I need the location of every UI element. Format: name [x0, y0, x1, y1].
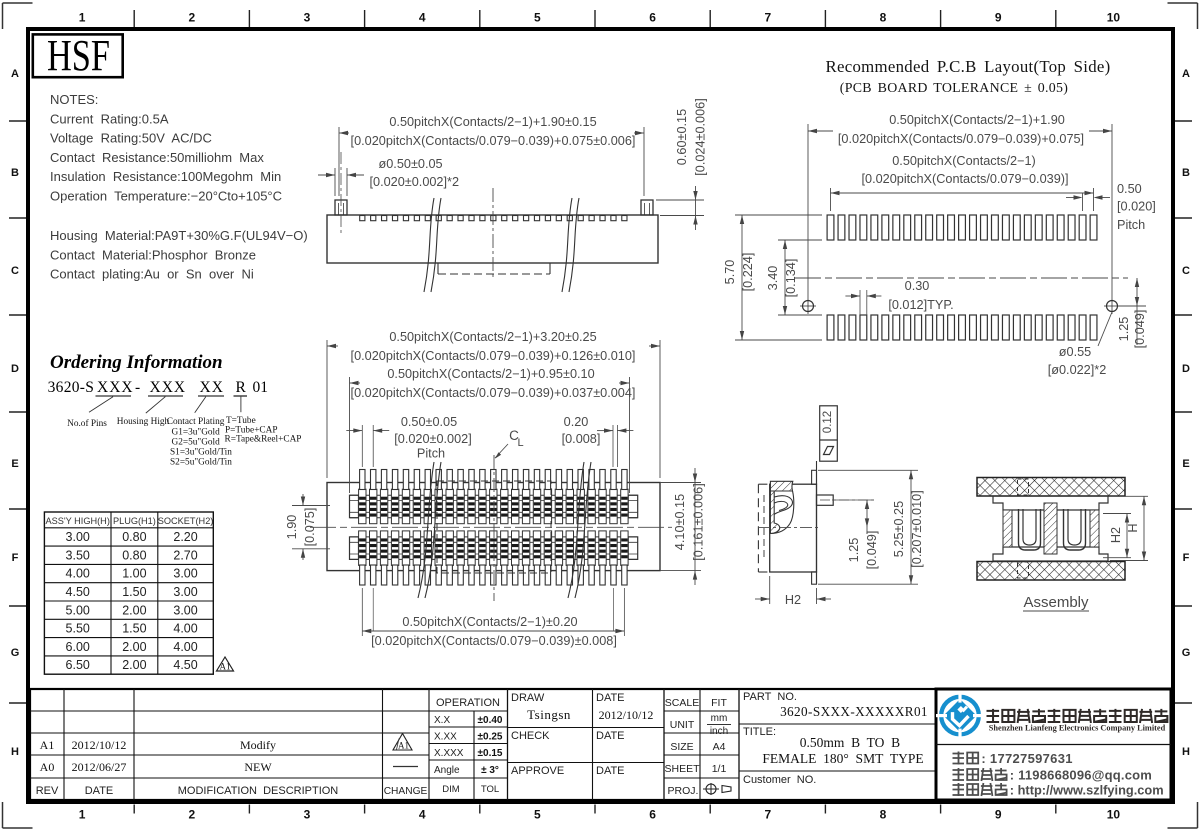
- svg-text:UNIT: UNIT: [670, 719, 695, 731]
- svg-text:DRAW: DRAW: [511, 692, 545, 704]
- svg-text:2.70: 2.70: [173, 548, 197, 562]
- svg-text:inch: inch: [710, 726, 728, 737]
- svg-text:NOTES:: NOTES:: [50, 92, 98, 107]
- svg-text:OPERATION: OPERATION: [436, 697, 500, 709]
- svg-text:0.50mm B TO B: 0.50mm B TO B: [800, 735, 900, 750]
- svg-text:1.25: 1.25: [1117, 317, 1131, 342]
- svg-text:MODIFICATION DESCRIPTION: MODIFICATION DESCRIPTION: [178, 785, 339, 797]
- svg-text:10: 10: [1107, 11, 1121, 25]
- svg-text:[0.049]: [0.049]: [865, 531, 879, 570]
- svg-text:S2=5u"Gold/Tin: S2=5u"Gold/Tin: [170, 458, 232, 468]
- svg-text:[0.224]: [0.224]: [741, 253, 755, 292]
- svg-text:Housing Material:PA9T+30%G.F(: Housing Material:PA9T+30%G.F(UL94V−O): [50, 228, 308, 243]
- svg-text:0.12: 0.12: [822, 411, 834, 433]
- svg-text:8: 8: [880, 11, 887, 25]
- svg-text:C: C: [1182, 265, 1190, 277]
- svg-text:4.00: 4.00: [173, 640, 197, 654]
- svg-text:T=Tube: T=Tube: [226, 416, 256, 426]
- svg-text:FIT: FIT: [711, 697, 727, 709]
- svg-text:3620-S: 3620-S: [48, 379, 95, 396]
- svg-text:F: F: [1183, 552, 1190, 564]
- svg-text:9: 9: [995, 11, 1002, 25]
- svg-text:R=Tape&Reel+CAP: R=Tape&Reel+CAP: [225, 435, 302, 445]
- svg-text:G: G: [11, 647, 20, 659]
- svg-text:2: 2: [188, 808, 195, 822]
- svg-text:[0.020pitchX(Contacts/0.079−0.: [0.020pitchX(Contacts/0.079−0.039)+0.075…: [838, 132, 1084, 146]
- svg-text:4: 4: [419, 11, 426, 25]
- svg-text:2.00: 2.00: [122, 658, 146, 672]
- svg-text:±0.15: ±0.15: [478, 748, 503, 759]
- svg-text:H: H: [1126, 523, 1140, 532]
- svg-text:PART NO.: PART NO.: [743, 691, 797, 703]
- svg-text:4.00: 4.00: [66, 567, 90, 581]
- svg-text:X.XX: X.XX: [434, 732, 457, 743]
- svg-text:DATE: DATE: [596, 692, 625, 704]
- svg-text:D: D: [11, 363, 19, 375]
- svg-text:A: A: [11, 68, 19, 80]
- svg-text:DATE: DATE: [596, 730, 625, 742]
- svg-text:B: B: [11, 167, 19, 179]
- svg-text:1: 1: [79, 808, 86, 822]
- svg-text:A1: A1: [398, 741, 409, 751]
- svg-text:G1=3u"Gold: G1=3u"Gold: [172, 428, 221, 438]
- svg-text:0.50±0.05: 0.50±0.05: [401, 415, 457, 429]
- svg-text:0.20: 0.20: [564, 415, 589, 429]
- svg-text:3.00: 3.00: [173, 603, 197, 617]
- svg-text:1.50: 1.50: [122, 585, 146, 599]
- svg-text:7: 7: [764, 11, 771, 25]
- svg-text:L: L: [517, 437, 523, 449]
- svg-text:ø0.50±0.05: ø0.50±0.05: [379, 157, 443, 171]
- svg-text:H: H: [11, 746, 19, 758]
- svg-text:0.60±0.15: 0.60±0.15: [675, 109, 689, 165]
- svg-text:A1: A1: [40, 738, 55, 752]
- svg-text:Pitch: Pitch: [1117, 218, 1145, 232]
- svg-text:1.50: 1.50: [122, 622, 146, 636]
- svg-text:A1: A1: [220, 662, 231, 672]
- svg-text:±0.40: ±0.40: [478, 715, 503, 726]
- svg-text:7: 7: [764, 808, 771, 822]
- svg-text:E: E: [1182, 458, 1189, 470]
- svg-text:5.00: 5.00: [66, 603, 90, 617]
- svg-text:H: H: [1182, 746, 1190, 758]
- svg-text:[0.012]TYP.: [0.012]TYP.: [888, 298, 953, 312]
- svg-text:4.10±0.15: 4.10±0.15: [673, 494, 687, 550]
- svg-text:SIZE: SIZE: [670, 741, 693, 753]
- svg-text:0.80: 0.80: [122, 530, 146, 544]
- svg-text:3: 3: [304, 808, 311, 822]
- svg-text:SHEET: SHEET: [664, 763, 700, 775]
- svg-text:[0.020pitchX(Contacts/0.079−0.: [0.020pitchX(Contacts/0.079−0.039)+0.075…: [351, 134, 636, 148]
- svg-text:6: 6: [649, 11, 656, 25]
- svg-text:NEW: NEW: [244, 760, 272, 774]
- svg-text:5: 5: [534, 11, 541, 25]
- svg-text:B: B: [1182, 167, 1190, 179]
- svg-text:3620-SXXX-XXXXXR01: 3620-SXXX-XXXXXR01: [780, 704, 928, 719]
- svg-text:2.20: 2.20: [173, 530, 197, 544]
- svg-text:9: 9: [995, 808, 1002, 822]
- svg-text:Tsingsn: Tsingsn: [527, 707, 571, 722]
- svg-text:4: 4: [419, 808, 426, 822]
- svg-text:A4: A4: [713, 741, 726, 753]
- svg-text:1: 1: [79, 11, 86, 25]
- svg-text:PROJ.: PROJ.: [668, 785, 699, 797]
- svg-text:2.00: 2.00: [122, 640, 146, 654]
- svg-text:6.50: 6.50: [66, 658, 90, 672]
- svg-text:3.50: 3.50: [66, 548, 90, 562]
- svg-text:DATE: DATE: [85, 785, 114, 797]
- svg-text:ASS'Y HIGH(H): ASS'Y HIGH(H): [46, 516, 110, 526]
- svg-text:Housing High: Housing High: [117, 417, 170, 427]
- svg-text:[0.008]: [0.008]: [562, 432, 601, 446]
- svg-text:10: 10: [1107, 808, 1121, 822]
- svg-text:TITLE:: TITLE:: [743, 726, 776, 738]
- svg-text:2012/10/12: 2012/10/12: [599, 708, 654, 722]
- svg-text:SOCKET(H2): SOCKET(H2): [158, 516, 214, 526]
- svg-text:3.00: 3.00: [173, 567, 197, 581]
- svg-text:1.90: 1.90: [285, 515, 299, 540]
- svg-text:2012/06/27: 2012/06/27: [72, 760, 127, 774]
- svg-text:0.50pitchX(Contacts/2−1)+0.95±: 0.50pitchX(Contacts/2−1)+0.95±0.10: [387, 367, 594, 381]
- svg-text:CHECK: CHECK: [511, 730, 550, 742]
- svg-text:No.of Pins: No.of Pins: [67, 418, 107, 429]
- svg-text:[0.020±0.002]*2: [0.020±0.002]*2: [370, 175, 460, 189]
- svg-text:Shenzhen Lianfeng Electronics: Shenzhen Lianfeng Electronics Company Li…: [989, 724, 1166, 733]
- svg-text:SCALE: SCALE: [665, 697, 699, 709]
- svg-text:0.50pitchX(Contacts/2−1)±0.20: 0.50pitchX(Contacts/2−1)±0.20: [402, 615, 577, 629]
- svg-text:5.25±0.25: 5.25±0.25: [892, 501, 906, 557]
- svg-text:6: 6: [649, 808, 656, 822]
- svg-text:DATE: DATE: [596, 765, 625, 777]
- svg-text:3.00: 3.00: [66, 530, 90, 544]
- svg-text:01: 01: [253, 379, 269, 396]
- svg-text:A0: A0: [40, 760, 55, 774]
- svg-text:2: 2: [188, 11, 195, 25]
- svg-text:Contact Plating: Contact Plating: [167, 417, 225, 427]
- svg-text:[0.020pitchX(Contacts/0.079−0.: [0.020pitchX(Contacts/0.079−0.039)]: [861, 172, 1068, 186]
- svg-text:1.25: 1.25: [847, 538, 861, 563]
- svg-text:5: 5: [534, 808, 541, 822]
- svg-text:Pitch: Pitch: [417, 447, 445, 461]
- svg-text:[0.024±0.006]: [0.024±0.006]: [694, 98, 708, 176]
- svg-text:TOL: TOL: [481, 784, 499, 795]
- svg-text:CHANGE: CHANGE: [384, 786, 428, 797]
- svg-text:Contact plating:Au or Sn o: Contact plating:Au or Sn over Ni: [50, 267, 254, 282]
- svg-text:[0.020±0.002]: [0.020±0.002]: [394, 432, 472, 446]
- svg-text:Operation Temperature:−20°Cto: Operation Temperature:−20°Cto+105°C: [50, 189, 282, 204]
- svg-text:Contact Resistance:50milliohm: Contact Resistance:50milliohm Max: [50, 150, 264, 165]
- svg-text:6.00: 6.00: [66, 640, 90, 654]
- svg-text:± 3°: ± 3°: [481, 765, 499, 776]
- svg-text:Angle: Angle: [434, 765, 460, 776]
- svg-text:Insulation Resistance:100Mego: Insulation Resistance:100Megohm Min: [50, 169, 281, 184]
- svg-text:R: R: [236, 379, 247, 396]
- svg-text:4.00: 4.00: [173, 622, 197, 636]
- svg-text:Ordering Information: Ordering Information: [50, 352, 223, 373]
- svg-text:0.50pitchX(Contacts/2−1): 0.50pitchX(Contacts/2−1): [892, 154, 1036, 168]
- svg-text:C: C: [11, 265, 19, 277]
- svg-text:[0.134]: [0.134]: [784, 259, 798, 298]
- svg-text:APPROVE: APPROVE: [511, 765, 564, 777]
- svg-text:0.50pitchX(Contacts/2−1)+1.90: 0.50pitchX(Contacts/2−1)+1.90: [889, 113, 1065, 127]
- svg-text:[0.020pitchX(Contacts/0.079−0.: [0.020pitchX(Contacts/0.079−0.039)+0.037…: [351, 386, 636, 400]
- svg-text:Contact Material:Phosphor Br: Contact Material:Phosphor Bronze: [50, 247, 256, 262]
- svg-text:0.30: 0.30: [905, 279, 930, 293]
- svg-text:DIM: DIM: [442, 784, 460, 795]
- svg-text:[0.020pitchX(Contacts/0.079−0.: [0.020pitchX(Contacts/0.079−0.039)+0.126…: [351, 349, 636, 363]
- svg-text:3.40: 3.40: [766, 266, 780, 291]
- svg-text:2.00: 2.00: [122, 603, 146, 617]
- svg-text:-: -: [135, 379, 140, 396]
- svg-text:X.X: X.X: [434, 715, 450, 726]
- svg-text:XX: XX: [200, 379, 224, 396]
- svg-text:1.00: 1.00: [122, 567, 146, 581]
- svg-text:Modify: Modify: [240, 738, 276, 752]
- svg-text:8: 8: [880, 808, 887, 822]
- svg-text:A: A: [1182, 68, 1190, 80]
- svg-text:: 17727597631: : 17727597631: [981, 751, 1072, 766]
- svg-text:[0.075]: [0.075]: [303, 508, 317, 547]
- svg-text:[ø0.022]*2: [ø0.022]*2: [1048, 363, 1107, 377]
- svg-text:[0.020]: [0.020]: [1117, 200, 1156, 214]
- svg-text:: http://www.szlfying.com: : http://www.szlfying.com: [1010, 783, 1164, 798]
- svg-text:XXX: XXX: [97, 379, 134, 396]
- svg-text:[0.020pitchX(Contacts/0.079−0.: [0.020pitchX(Contacts/0.079−0.039)±0.008…: [371, 634, 617, 648]
- svg-text:HSF: HSF: [47, 31, 110, 80]
- svg-text:Customer NO.: Customer NO.: [743, 774, 816, 786]
- svg-text:: 1198668096@qq.com: : 1198668096@qq.com: [1010, 768, 1152, 783]
- svg-text:REV: REV: [36, 785, 59, 797]
- svg-text:XXX: XXX: [150, 379, 187, 396]
- svg-text:ø0.55: ø0.55: [1059, 345, 1091, 359]
- svg-text:0.80: 0.80: [122, 548, 146, 562]
- svg-text:G: G: [1182, 647, 1191, 659]
- svg-text:0.50pitchX(Contacts/2−1)+1.90±: 0.50pitchX(Contacts/2−1)+1.90±0.15: [389, 115, 596, 129]
- svg-text:[0.161±0.006]: [0.161±0.006]: [692, 483, 706, 561]
- svg-text:1/1: 1/1: [712, 763, 727, 775]
- svg-text:mm: mm: [711, 713, 728, 724]
- svg-text:Current Rating:0.5A: Current Rating:0.5A: [50, 111, 169, 126]
- svg-text:(PCB BOARD TOLERANCE ± 0.05): (PCB BOARD TOLERANCE ± 0.05): [840, 81, 1068, 96]
- svg-text:Voltage Rating:50V AC/DC: Voltage Rating:50V AC/DC: [50, 131, 212, 146]
- svg-text:H2: H2: [785, 593, 801, 607]
- svg-text:[0.207±0.010]: [0.207±0.010]: [910, 490, 924, 568]
- svg-text:2012/10/12: 2012/10/12: [72, 738, 127, 752]
- svg-text:4.50: 4.50: [66, 585, 90, 599]
- svg-text:0.50: 0.50: [1117, 182, 1142, 196]
- svg-text:3: 3: [304, 11, 311, 25]
- svg-text:±0.25: ±0.25: [478, 732, 503, 743]
- svg-text:5.70: 5.70: [723, 260, 737, 285]
- svg-text:3.00: 3.00: [173, 585, 197, 599]
- svg-text:5.50: 5.50: [66, 622, 90, 636]
- svg-text:H2: H2: [1109, 527, 1123, 543]
- svg-text:0.50pitchX(Contacts/2−1)+3.20±: 0.50pitchX(Contacts/2−1)+3.20±0.25: [389, 330, 596, 344]
- svg-text:Assembly: Assembly: [1023, 594, 1089, 611]
- svg-text:G2=5u"Gold: G2=5u"Gold: [172, 438, 221, 448]
- svg-text:[0.049]: [0.049]: [1133, 310, 1147, 349]
- svg-text:S1=3u"Gold/Tin: S1=3u"Gold/Tin: [170, 448, 232, 458]
- svg-text:X.XXX: X.XXX: [434, 748, 464, 759]
- svg-text:FEMALE 180° SMT TYPE: FEMALE 180° SMT TYPE: [762, 751, 923, 766]
- svg-text:F: F: [12, 552, 19, 564]
- svg-text:4.50: 4.50: [173, 658, 197, 672]
- svg-text:Recommended P.C.B Layout(Top S: Recommended P.C.B Layout(Top Side): [825, 57, 1110, 76]
- svg-text:D: D: [1182, 363, 1190, 375]
- svg-text:E: E: [11, 458, 18, 470]
- svg-text:PLUG(H1): PLUG(H1): [113, 516, 156, 526]
